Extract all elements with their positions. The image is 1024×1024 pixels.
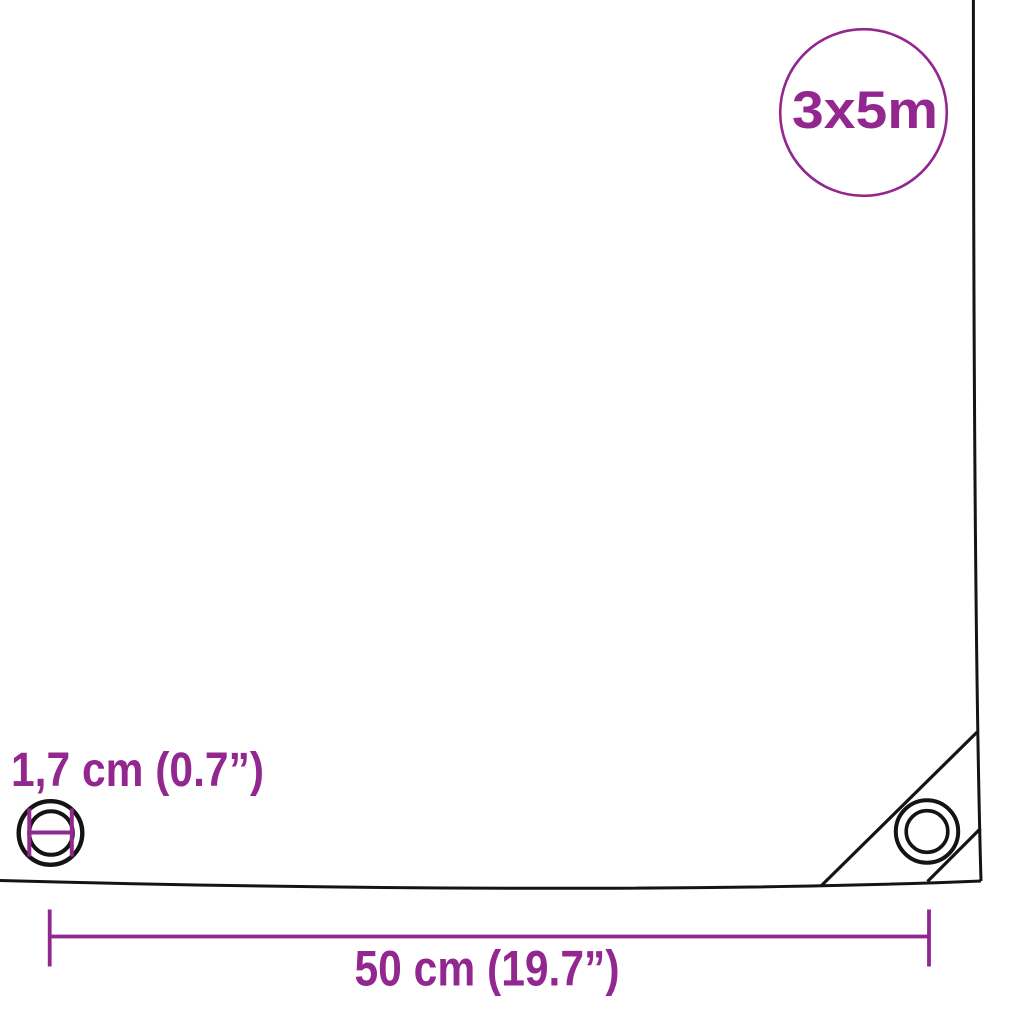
svg-text:3x5m: 3x5m — [792, 81, 938, 140]
svg-text:50 cm (19.7”): 50 cm (19.7”) — [355, 941, 620, 997]
svg-text:1,7 cm (0.7”): 1,7 cm (0.7”) — [11, 744, 264, 797]
